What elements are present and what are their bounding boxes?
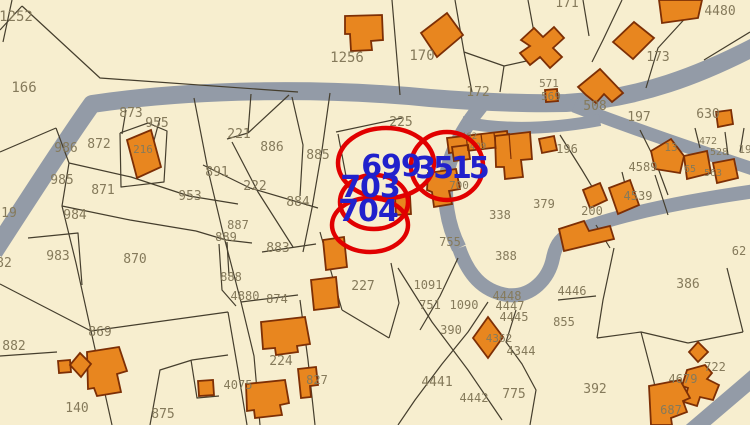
parcel-label: 883 [266,241,289,256]
parcel-label: 885 [306,148,329,163]
parcel-label: 827 [306,373,328,387]
parcel-label: 1252 [0,9,33,25]
parcel-label: 953 [178,189,201,204]
parcel-label: 872 [87,137,110,152]
parcel-label: 197 [627,110,650,125]
parcel-label: 873 [119,106,142,121]
parcel-label: 508 [583,99,606,114]
parcel-label: 19 [738,143,750,156]
parcel-label: 4480 [704,4,735,19]
parcel-label: 884 [286,195,310,210]
parcel-label: 569 [541,90,561,103]
parcel-label: 196 [556,142,578,156]
parcel-label: 984 [63,208,87,223]
parcel-label: 855 [553,315,575,329]
parcel-label: 221 [227,127,250,142]
parcel-label: 563 [704,168,722,179]
parcel-label: 889 [215,230,237,244]
cadastral-map-viewer: 1252166873955872986216985871199539849838… [0,0,750,425]
parcel-label: 571 [539,77,559,90]
parcel-label: 392 [583,382,606,397]
highlighted-parcel-number: 3515 [415,151,488,186]
parcel-label: 874 [266,292,288,306]
parcel-label: 871 [91,183,114,198]
parcel-label: 4679 [669,372,698,386]
parcel-label: 172 [466,85,489,100]
parcel-label: 1256 [330,50,364,66]
parcel-label: 13 [664,141,677,154]
parcel-label: 869 [88,325,111,340]
parcel-label: 338 [489,208,511,222]
building-footprint [87,347,127,396]
parcel-label: 4344 [507,344,536,358]
parcel-label: 4539 [624,189,653,203]
parcel-label: 4075 [224,378,253,392]
parcel-label: 140 [65,401,88,416]
parcel-label: 200 [581,204,603,218]
parcel-label: 173 [646,50,669,65]
map-canvas[interactable]: 1252166873955872986216985871199539849838… [0,0,750,425]
parcel-label: 630 [696,107,719,122]
parcel-label: 985 [50,173,73,188]
building-footprint [311,277,339,310]
parcel-label: 65 [684,164,696,175]
parcel-label: 888 [220,270,242,284]
parcel-label: 224 [269,354,293,369]
parcel-label: 4589 [629,160,658,174]
parcel-label: 386 [676,277,699,292]
parcel-label: 986 [54,141,77,156]
parcel-label: 528 [710,147,728,158]
parcel-label: 170 [409,48,434,64]
parcel-label: 390 [440,323,462,337]
building-footprint [198,380,214,396]
parcel-label: 4442 [460,391,489,405]
building-footprint [539,136,557,153]
parcel-label: 62 [732,244,746,258]
parcel-label: 891 [205,165,228,180]
parcel-label: 722 [704,360,726,374]
parcel-label: 166 [11,80,36,96]
parcel-label: 755 [439,235,461,249]
parcel-label: 882 [2,339,25,354]
parcel-label: 216 [133,143,153,156]
parcel-label: 870 [123,252,146,267]
parcel-label: 886 [260,140,283,155]
parcel-label: 82 [0,256,12,271]
parcel-label: 4880 [231,289,260,303]
parcel-label: 4445 [500,310,529,324]
parcel-label: 751 [419,298,441,312]
highlighted-parcel-number: 704 [338,194,398,229]
parcel-label: 227 [351,279,374,294]
parcel-label: 4446 [558,284,587,298]
parcel-label: 4441 [421,375,452,390]
parcel-label: 19 [1,206,17,221]
parcel-label: 983 [46,249,69,264]
parcel-label: 222 [243,179,266,194]
parcel-label: 1090 [450,298,479,312]
parcel-label: 171 [555,0,578,11]
parcel-label: 775 [502,387,525,402]
building-footprint [58,360,71,373]
parcel-label: 388 [495,249,517,263]
parcel-label: 875 [151,407,174,422]
parcel-label: 1091 [414,278,443,292]
parcel-label: 379 [533,197,555,211]
parcel-label: 687 [660,403,682,417]
parcel-label: 472 [699,136,717,147]
parcel-label: 955 [145,116,168,131]
